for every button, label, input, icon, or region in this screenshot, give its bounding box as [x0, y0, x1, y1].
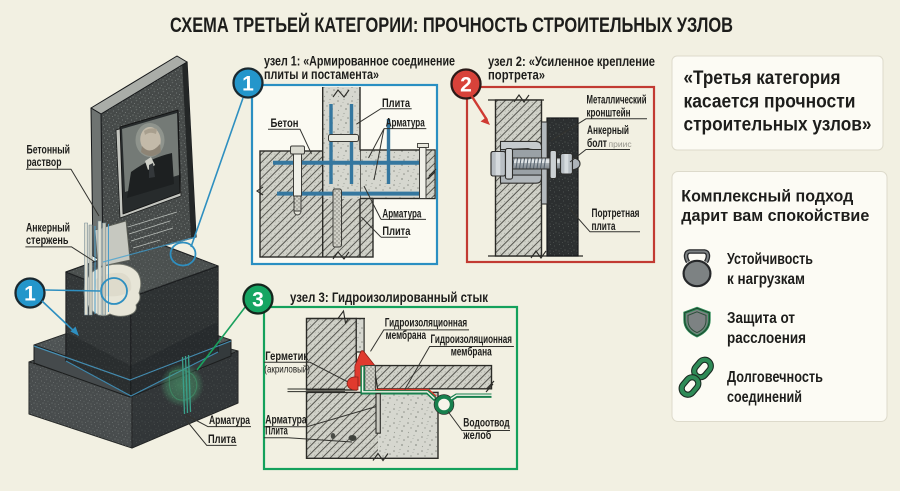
- svg-text:Арматура: Арматура: [382, 208, 421, 220]
- svg-text:касается прочности: касается прочности: [684, 91, 856, 112]
- svg-text:к нагрузкам: к нагрузкам: [727, 271, 805, 288]
- svg-text:мембрана: мембрана: [386, 330, 427, 342]
- svg-text:приис: приис: [609, 139, 633, 149]
- svg-text:Металлический: Металлический: [587, 93, 647, 107]
- svg-text:3: 3: [252, 289, 264, 312]
- svg-text:Анкерный: Анкерный: [587, 123, 629, 137]
- svg-text:мембрана: мембрана: [451, 346, 492, 358]
- svg-text:плита: плита: [592, 219, 616, 233]
- svg-text:плиты и постамента»: плиты и постамента»: [264, 67, 379, 82]
- svg-text:портрета»: портрета»: [488, 68, 545, 83]
- svg-text:строительных узлов»: строительных узлов»: [684, 115, 872, 136]
- svg-text:Устойчивость: Устойчивость: [727, 251, 813, 268]
- svg-text:дарит вам спокойствие: дарит вам спокойствие: [681, 206, 869, 225]
- svg-text:Комплексный подход: Комплексный подход: [681, 187, 853, 206]
- svg-text:узел 3: Гидроизолированный сты: узел 3: Гидроизолированный стык: [290, 289, 489, 305]
- svg-text:соединений: соединений: [727, 389, 802, 406]
- svg-text:Арматура: Арматура: [209, 415, 250, 427]
- svg-text:Защита от: Защита от: [727, 310, 795, 327]
- svg-text:СХЕМА ТРЕТЬЕЙ КАТЕГОРИИ: ПРОЧН: СХЕМА ТРЕТЬЕЙ КАТЕГОРИИ: ПРОЧНОСТЬ СТРОИ…: [170, 12, 733, 37]
- svg-text:Плита: Плита: [382, 226, 410, 238]
- svg-text:желоб: желоб: [463, 430, 492, 442]
- svg-text:1: 1: [242, 73, 254, 96]
- svg-text:Анкерный: Анкерный: [26, 223, 70, 235]
- svg-text:1: 1: [24, 283, 36, 306]
- svg-text:расслоения: расслоения: [727, 330, 806, 347]
- svg-text:болт: болт: [587, 136, 607, 150]
- svg-text:Бетонный: Бетонный: [27, 145, 71, 157]
- svg-text:раствор: раствор: [27, 157, 62, 169]
- svg-text:Плита: Плита: [208, 434, 236, 446]
- svg-text:2: 2: [460, 74, 472, 97]
- svg-text:Водоотвод: Водоотвод: [463, 418, 510, 430]
- svg-text:кронштейн: кронштейн: [587, 106, 631, 120]
- svg-text:(акриловый): (акриловый): [264, 364, 310, 375]
- svg-text:Плита: Плита: [265, 426, 288, 438]
- svg-text:стержень: стержень: [26, 235, 69, 247]
- svg-text:Плита: Плита: [382, 98, 410, 110]
- svg-text:Портретная: Портретная: [592, 206, 640, 220]
- svg-text:«Третья категория: «Третья категория: [684, 68, 841, 89]
- svg-text:Арматура: Арматура: [386, 117, 425, 129]
- svg-text:Герметик: Герметик: [265, 351, 308, 363]
- svg-text:Гидроизоляционная: Гидроизоляционная: [385, 318, 468, 330]
- svg-text:Гидроизоляционная: Гидроизоляционная: [431, 334, 513, 346]
- svg-text:Бетон: Бетон: [271, 118, 299, 130]
- svg-text:Долговечность: Долговечность: [727, 369, 823, 386]
- svg-text:Арматура: Арматура: [265, 414, 307, 426]
